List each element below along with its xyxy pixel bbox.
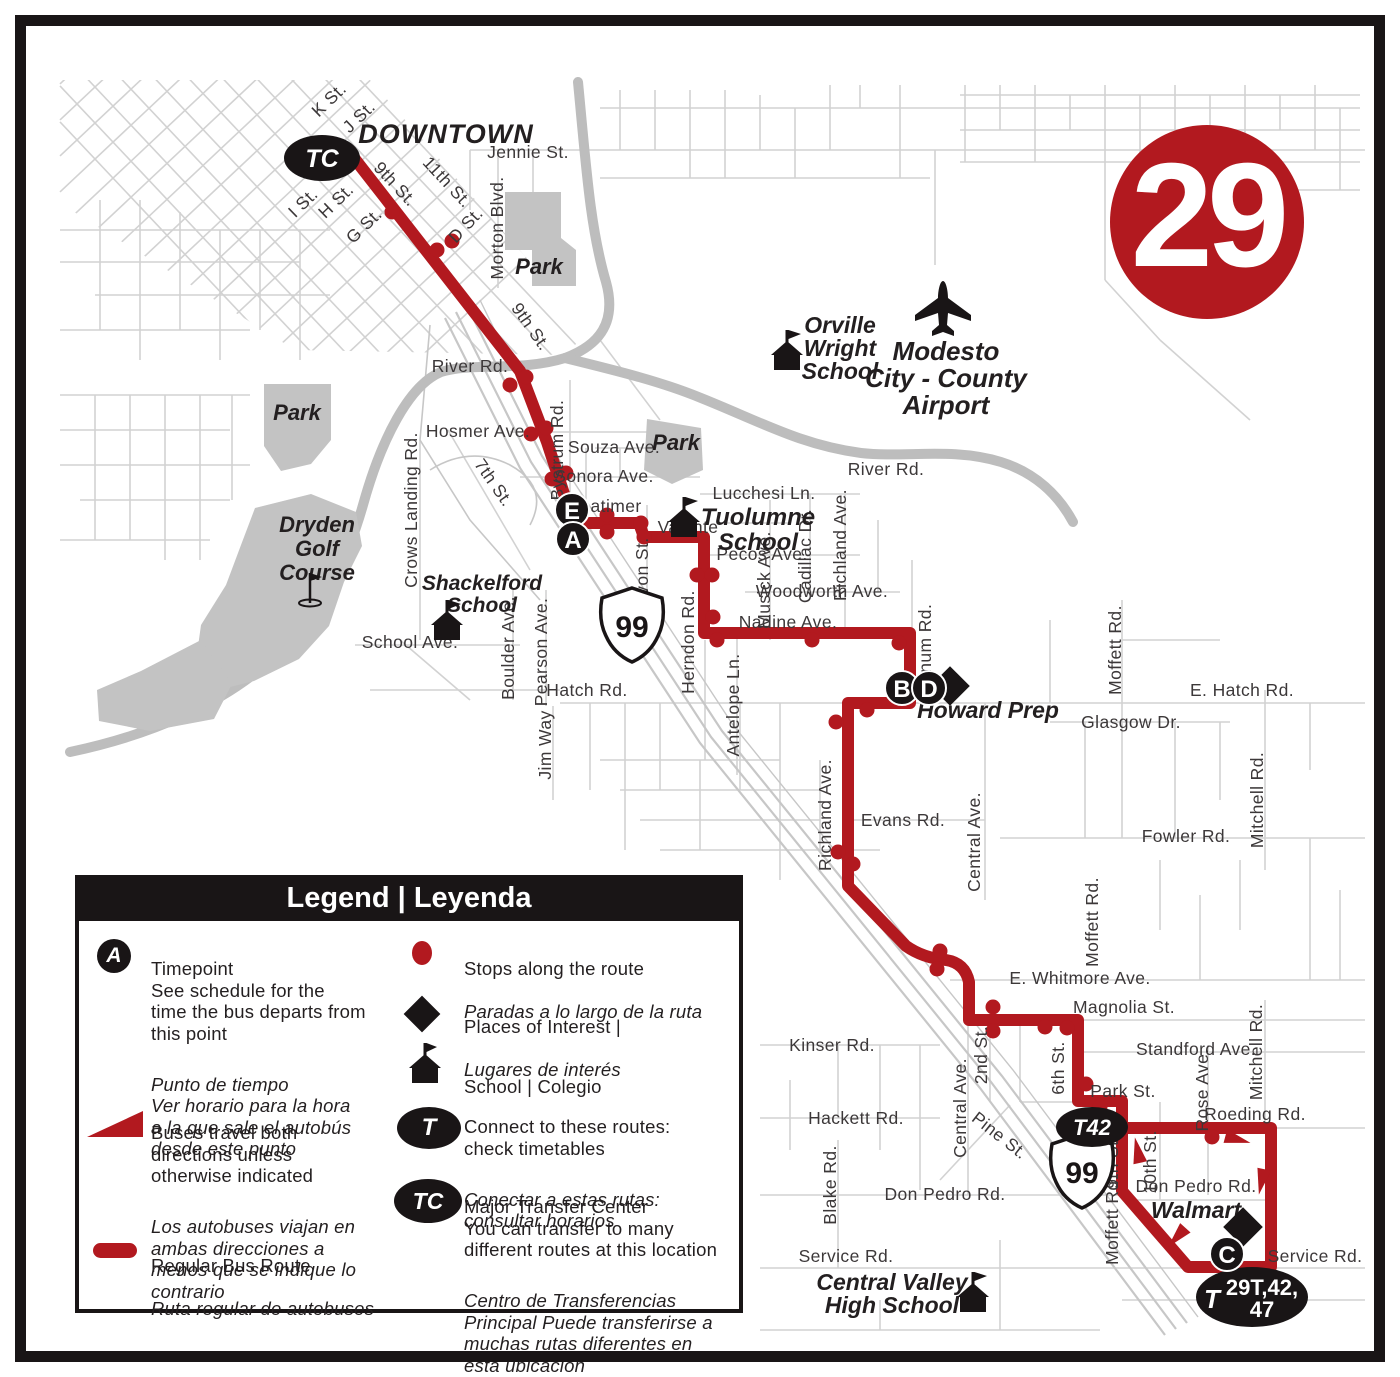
legend-school-icon <box>405 1037 449 1085</box>
route-stop-dot <box>385 205 400 220</box>
dryden-label-line: Golf <box>295 536 342 561</box>
street-label: River Rd. <box>848 459 925 479</box>
route-stop-dot <box>690 568 705 583</box>
street-label: Evans Rd. <box>861 810 945 830</box>
legend-route-en: Regular Bus Route <box>151 1255 374 1276</box>
legend-connect-en: Connect to these routes: check timetable… <box>464 1116 670 1159</box>
route-stop-dot <box>930 962 945 977</box>
street-label: 6th St. <box>1048 1041 1068 1094</box>
street-label: Central Ave. <box>950 1058 970 1158</box>
route-number-badge: 29 <box>1110 125 1304 319</box>
shackelford-label-line: School <box>447 594 518 617</box>
timepoint-d: D <box>920 676 937 703</box>
street-label: Jim Way <box>535 710 555 779</box>
airplane-icon <box>915 281 971 336</box>
street-label: 11th St. <box>419 152 476 211</box>
dryden-label-line: Dryden <box>279 512 355 537</box>
street-label: 9th St. <box>507 299 554 354</box>
timepoint-e: E <box>564 498 580 525</box>
legend-stop-icon <box>412 941 432 965</box>
park-label: Park <box>515 254 564 279</box>
route-number: 29 <box>1131 131 1284 301</box>
legend-connect-t: T <box>422 1114 437 1142</box>
street-label: Lucchesi Ln. <box>712 483 815 503</box>
street-label: Souza Ave. <box>568 437 660 457</box>
street-label: 2nd St. <box>971 1026 991 1084</box>
tc-marker: TC <box>284 135 360 181</box>
street-label: Service Rd. <box>799 1246 894 1266</box>
highway-99-number: 99 <box>1065 1157 1098 1190</box>
legend-transfer-center-icon: TC <box>394 1179 462 1223</box>
route-stop-dot <box>986 1000 1001 1015</box>
legend-transfer-tc: TC <box>413 1188 444 1215</box>
transfer-routes-t: T <box>1204 1284 1222 1314</box>
route-stop-dot <box>634 516 649 531</box>
street-label: I St. <box>284 184 322 221</box>
street-label: Kinser Rd. <box>789 1035 875 1055</box>
orville-wright-school-icon <box>771 330 803 370</box>
tc-marker-label: TC <box>305 145 339 173</box>
street-label: Service Rd. <box>1268 1246 1363 1266</box>
legend-route-line-icon <box>93 1243 137 1258</box>
street-label: Central Ave. <box>964 792 984 892</box>
legend-poi-icon <box>404 996 441 1033</box>
street-label: Park St. <box>1090 1081 1155 1101</box>
route-stop-dot <box>1038 1020 1053 1035</box>
route-stop-dot <box>805 633 820 648</box>
airport-label-line: Airport <box>902 390 991 420</box>
transfer-routes-marker: T 29T,42, 47 <box>1196 1267 1308 1327</box>
route-stop-dot <box>933 944 948 959</box>
legend-route-text: Regular Bus Route Ruta regular de autobu… <box>151 1234 374 1341</box>
tuolumne-label-line: Tuolumne <box>701 504 815 531</box>
transfer-routes-line2: 47 <box>1250 1297 1274 1322</box>
route-stop-dot <box>706 610 721 625</box>
legend-directions-en: Buses travel both directions unless othe… <box>151 1122 356 1186</box>
street-label: Roeding Rd. <box>1204 1104 1306 1124</box>
legend-connect-icon: T <box>397 1107 461 1149</box>
street-label: Richland Ave. <box>815 759 835 871</box>
legend-timepoint-letter: A <box>106 944 121 968</box>
street-label: Morton Blvd. <box>487 176 507 279</box>
highway-99-number: 99 <box>615 611 648 644</box>
route-stop-dot <box>829 715 844 730</box>
dryden-label-line: Course <box>279 560 355 585</box>
street-label: 7th St. <box>470 455 517 510</box>
street-label: E. Whitmore Ave. <box>1009 968 1150 988</box>
legend-poi-en: Places of Interest | <box>464 1016 621 1037</box>
legend-stops-en: Stops along the route <box>464 958 702 979</box>
street-label: Crows Landing Rd. <box>401 432 421 588</box>
street-label: Antelope Ln. <box>723 653 743 756</box>
route-map-page: K St. J St. I St. H St. G St. 9th St. 11… <box>0 0 1400 1377</box>
timepoint-a: A <box>564 527 581 554</box>
street-label: Don Pedro Rd. <box>1136 1176 1257 1196</box>
legend-timepoint-en: Timepoint See schedule for the time the … <box>151 958 366 1044</box>
street-label: Hatch Rd. <box>546 680 627 700</box>
street-label: Mitchell Rd. <box>1247 752 1267 848</box>
route-stop-dot <box>892 636 907 651</box>
legend-header: Legend | Leyenda <box>75 875 743 921</box>
airport-label-line: Modesto <box>893 336 1000 366</box>
route-stop-dot <box>705 568 720 583</box>
street-label: Herndon Rd. <box>678 590 698 694</box>
street-label: H St. <box>314 179 357 222</box>
legend-transfer-en: Major Transfer Center You can transfer t… <box>464 1196 717 1260</box>
street-label: Magnolia St. <box>1073 997 1175 1017</box>
street-label: Glasgow Dr. <box>1081 712 1181 732</box>
street-label: Fowler Rd. <box>1142 826 1231 846</box>
legend-transfer-text: Major Transfer Center You can transfer t… <box>464 1175 717 1377</box>
route-stop-dot <box>503 378 518 393</box>
legend-transfer-es: Centro de Transferencias Principal Puede… <box>464 1290 717 1376</box>
street-label: D St. <box>444 203 487 247</box>
street-label: Moffett Rd. <box>1105 605 1125 695</box>
route-stop-dot <box>600 525 615 540</box>
route-stop-dot <box>519 370 534 385</box>
street-label: Blake Rd. <box>820 1145 840 1224</box>
legend-box: Legend | Leyenda A Timepoint See schedul… <box>75 875 743 1313</box>
route-stop-dot <box>430 243 445 258</box>
legend-title: Legend | Leyenda <box>287 882 532 915</box>
shackelford-label-line: Shackelford <box>422 572 543 595</box>
t42-marker: T42 <box>1056 1107 1128 1147</box>
walmart-label: Walmart <box>1151 1197 1243 1223</box>
street-label: Woodworth Ave. <box>756 581 888 601</box>
street-label: Mitchell Rd. <box>1246 1004 1266 1100</box>
route-stop-dot <box>710 633 725 648</box>
park-label: Park <box>273 400 322 425</box>
street-label: E. Hatch Rd. <box>1190 680 1294 700</box>
route-stop-dot <box>1060 1021 1075 1036</box>
street-label: Nadine Ave. <box>739 612 837 632</box>
street-label: Moffett Rd. <box>1082 877 1102 967</box>
street-label: Don Pedro Rd. <box>885 1184 1006 1204</box>
street-label: Sonora Ave. <box>554 466 653 486</box>
tuolumne-label-line: School <box>718 529 799 556</box>
timepoint-b: B <box>893 676 910 703</box>
t42-marker-label: T42 <box>1073 1115 1112 1140</box>
route-stop-dot <box>860 703 875 718</box>
cv-label-line: High School <box>825 1292 960 1318</box>
route-stop-dot <box>846 857 861 872</box>
legend-direction-arrow-icon <box>87 1105 145 1141</box>
airport-label-line: City - County <box>865 363 1028 393</box>
legend-timepoint-icon: A <box>97 939 131 973</box>
street-label: Hosmer Ave. <box>426 421 530 441</box>
downtown-label: DOWNTOWN <box>358 119 533 149</box>
timepoint-c: C <box>1218 1242 1235 1269</box>
street-label: River Rd. <box>432 356 509 376</box>
legend-route-es: Ruta regular de autobuses <box>151 1298 374 1319</box>
street-label: Hackett Rd. <box>808 1108 904 1128</box>
park-west <box>264 384 331 471</box>
park-label: Park <box>652 430 701 455</box>
